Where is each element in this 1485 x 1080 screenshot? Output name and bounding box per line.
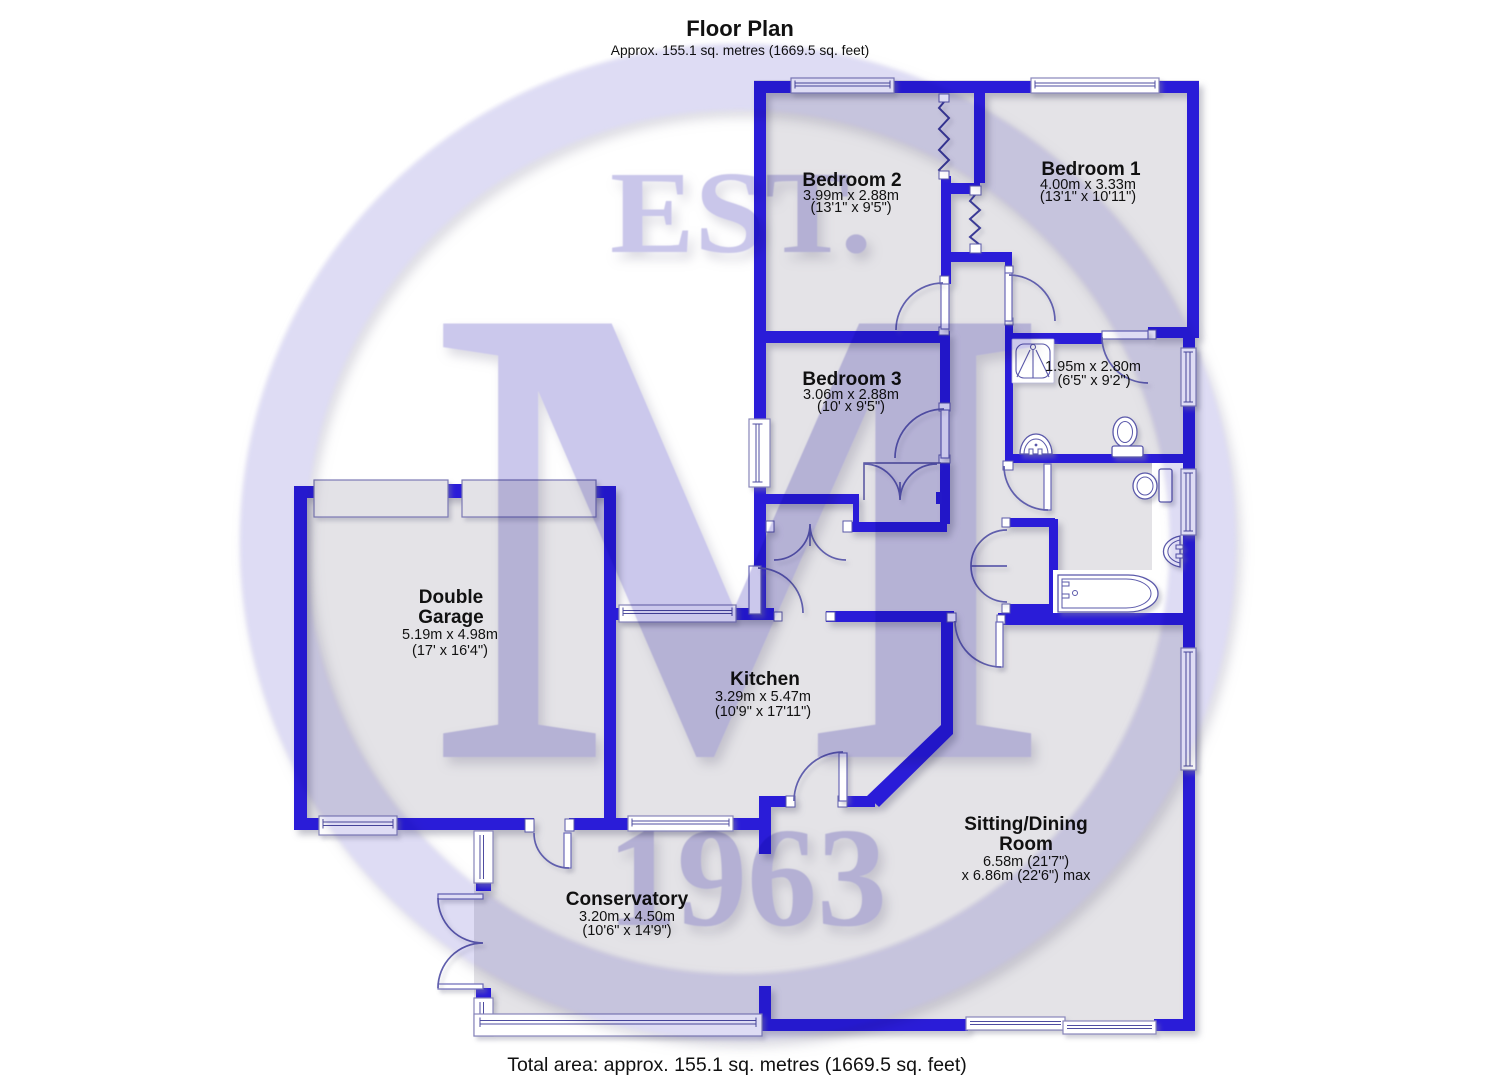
svg-text:1963: 1963 xyxy=(607,798,887,956)
svg-text:Floor Plan: Floor Plan xyxy=(686,16,794,41)
svg-text:M: M xyxy=(432,168,1050,901)
svg-text:Total area: approx. 155.1 sq.: Total area: approx. 155.1 sq. metres (16… xyxy=(507,1054,967,1076)
svg-text:(6'5" x 9'2"): (6'5" x 9'2") xyxy=(1057,373,1130,389)
